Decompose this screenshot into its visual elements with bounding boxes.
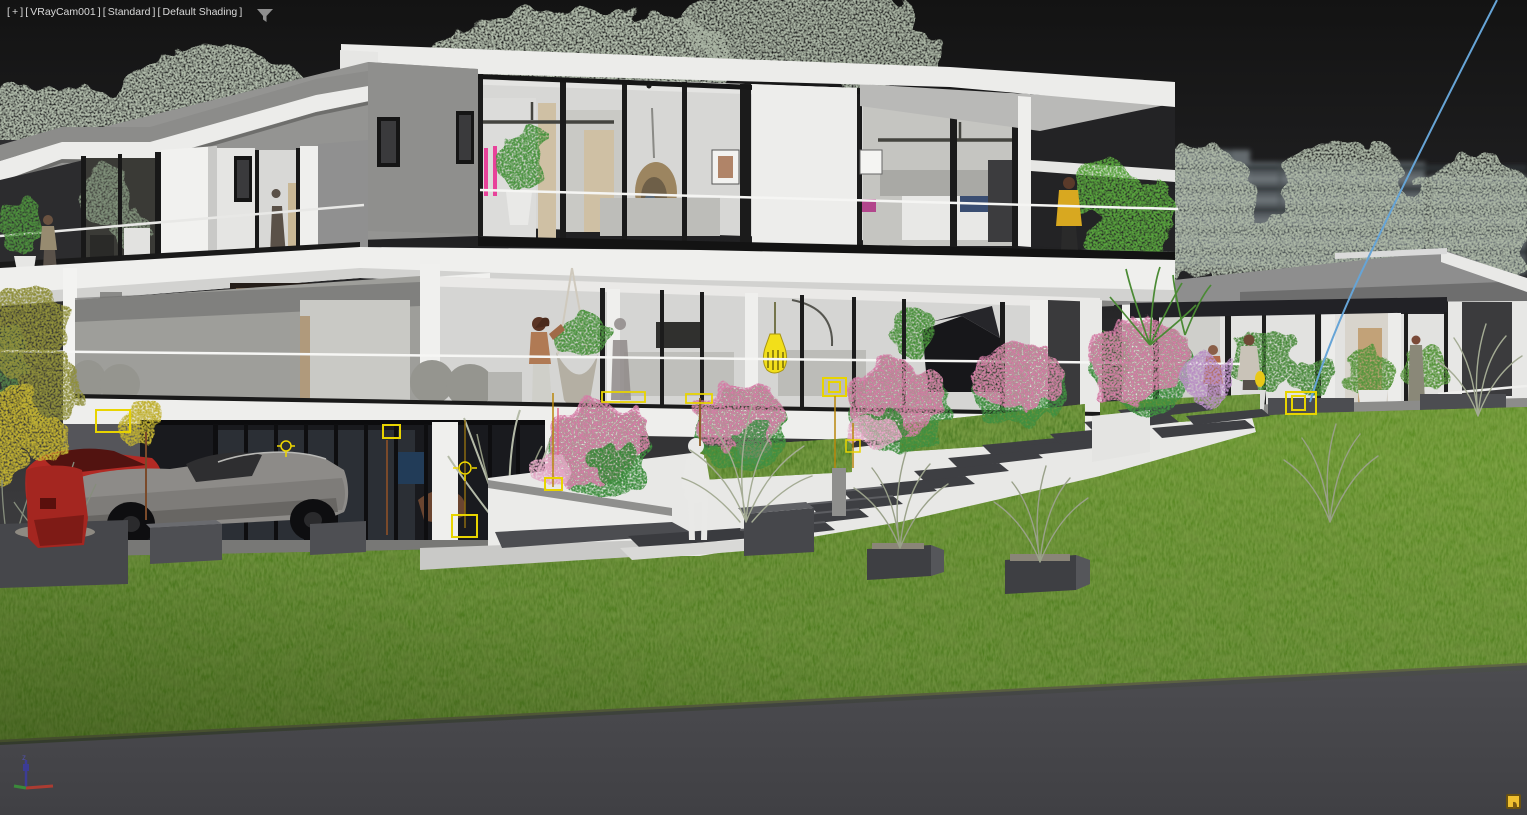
svg-text:z: z xyxy=(22,753,26,762)
